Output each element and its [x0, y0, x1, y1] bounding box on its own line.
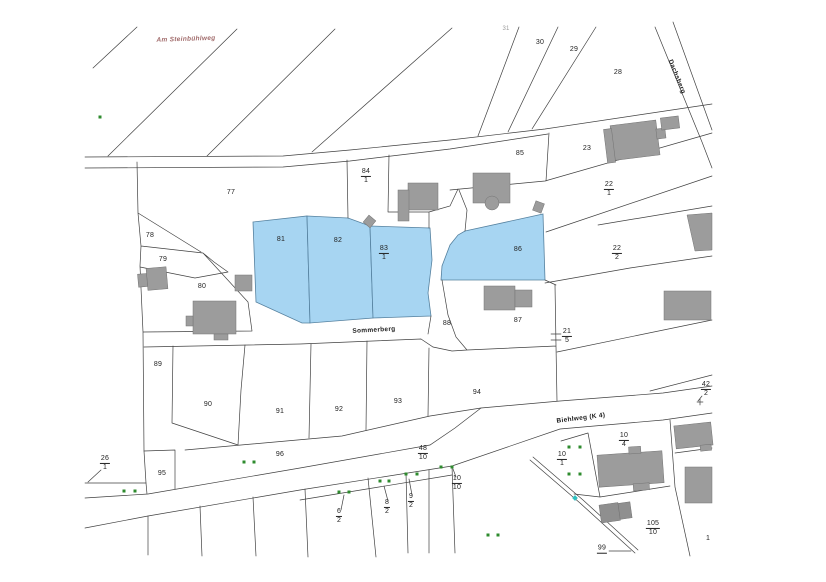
parcel-label-21-5: 215	[562, 328, 572, 344]
parcel-subnumber: 1	[604, 190, 614, 198]
parcel-subnumber: 10	[646, 529, 660, 537]
parcel-label-81: 81	[277, 236, 285, 244]
parcel-label-94: 94	[473, 389, 481, 397]
parcel-label-89: 89	[154, 361, 162, 369]
parcel-number: 84	[361, 168, 371, 177]
survey-point-marker	[572, 495, 578, 501]
street-label: Sommerberg	[352, 327, 395, 336]
tree-marker	[348, 491, 351, 494]
parcel-label-91: 91	[276, 408, 284, 416]
parcel-subnumber: 2	[336, 517, 342, 525]
tree-marker	[568, 473, 571, 476]
tree-marker	[440, 466, 443, 469]
tree-marker	[388, 480, 391, 483]
parcel-subnumber: 1	[379, 254, 389, 262]
parcel-subnumber: 2	[612, 254, 622, 262]
street-label: Dachsberg	[666, 59, 686, 95]
parcel-subnumber: 10	[418, 454, 428, 462]
parcel-label-80: 80	[198, 283, 206, 291]
parcel-label-22-1: 221	[604, 181, 614, 197]
parcel-subnumber: 1	[557, 460, 567, 468]
parcel-subnumber: 5	[562, 337, 572, 345]
parcel-label-95: 95	[158, 470, 166, 478]
tree-marker	[123, 490, 126, 493]
parcel-number: 42	[701, 381, 711, 390]
parcel-number: 8	[384, 499, 390, 508]
parcel-label-77: 77	[227, 189, 235, 197]
parcel-number: 22	[604, 181, 614, 190]
parcel-label-6-2: 62	[336, 508, 342, 524]
parcel-label-30: 30	[536, 39, 544, 47]
parcel-subnumber: 2	[408, 502, 414, 510]
tree-marker	[579, 473, 582, 476]
tree-marker	[243, 461, 246, 464]
street-label: Am Steinbühlweg	[156, 36, 215, 45]
tree-marker	[134, 490, 137, 493]
parcel-label-105-10: 10510	[646, 520, 660, 536]
tree-marker	[579, 446, 582, 449]
tree-marker	[99, 116, 102, 119]
parcel-label-28: 28	[614, 69, 622, 77]
parcel-label-31: 31	[502, 26, 509, 32]
parcel-number: 21	[562, 328, 572, 337]
parcel-label-93: 93	[394, 398, 402, 406]
parcel-label-1: 1	[706, 535, 710, 543]
parcel-label-10-1: 101	[557, 451, 567, 467]
parcel-label-87: 87	[514, 317, 522, 325]
parcel-label-23: 23	[583, 145, 591, 153]
parcel-label-88: 88	[443, 320, 451, 328]
parcel-label-99: 99	[597, 545, 607, 554]
parcel-label-79: 79	[159, 256, 167, 264]
parcel-label-84-1: 841	[361, 168, 371, 184]
parcel-subnumber: 1	[100, 464, 110, 472]
parcel-label-10-4: 104	[619, 432, 629, 448]
parcel-label-83-1: 831	[379, 245, 389, 261]
parcel-label-78: 78	[146, 232, 154, 240]
tree-marker	[451, 466, 454, 469]
parcel-label-85: 85	[516, 150, 524, 158]
parcel-number: 99	[597, 545, 607, 554]
parcel-number: 48	[418, 445, 428, 454]
parcel-subnumber: 2	[701, 390, 711, 398]
street-label: Biehlweg (K 4)	[556, 413, 605, 425]
tree-marker	[416, 473, 419, 476]
parcel-number: 83	[379, 245, 389, 254]
tree-marker	[253, 461, 256, 464]
parcel-subnumber: 4	[619, 441, 629, 449]
tree-marker	[379, 480, 382, 483]
tree-marker	[568, 446, 571, 449]
parcel-number: 10	[452, 475, 462, 484]
parcel-number: 10	[557, 451, 567, 460]
parcel-label-26-1: 261	[100, 455, 110, 471]
parcel-number: 22	[612, 245, 622, 254]
cadastral-map: 3130292823858417722178818283186222798088…	[0, 0, 826, 582]
tree-marker	[405, 473, 408, 476]
parcel-label-82: 82	[334, 237, 342, 245]
parcel-number: 9	[408, 493, 414, 502]
parcel-subnumber: 2	[384, 508, 390, 516]
parcel-label-92: 92	[335, 406, 343, 414]
parcel-subnumber: 1	[361, 177, 371, 185]
parcel-label-48-10: 4810	[418, 445, 428, 461]
parcel-number: 105	[646, 520, 660, 529]
parcel-label-29: 29	[570, 46, 578, 54]
parcel-label-86: 86	[514, 246, 522, 254]
parcel-label-96: 96	[276, 451, 284, 459]
parcel-label-42-2: 422	[701, 381, 711, 397]
map-labels: 3130292823858417722178818283186222798088…	[0, 0, 826, 582]
parcel-label-22-2: 222	[612, 245, 622, 261]
parcel-number: 10	[619, 432, 629, 441]
parcel-subnumber: 10	[452, 484, 462, 492]
tree-marker	[497, 534, 500, 537]
parcel-label-9-2: 92	[408, 493, 414, 509]
parcel-number: 26	[100, 455, 110, 464]
tree-marker	[487, 534, 490, 537]
parcel-label-8-2: 82	[384, 499, 390, 515]
parcel-label-90: 90	[204, 401, 212, 409]
tree-marker	[338, 491, 341, 494]
parcel-number: 6	[336, 508, 342, 517]
parcel-label-10-10: 1010	[452, 475, 462, 491]
